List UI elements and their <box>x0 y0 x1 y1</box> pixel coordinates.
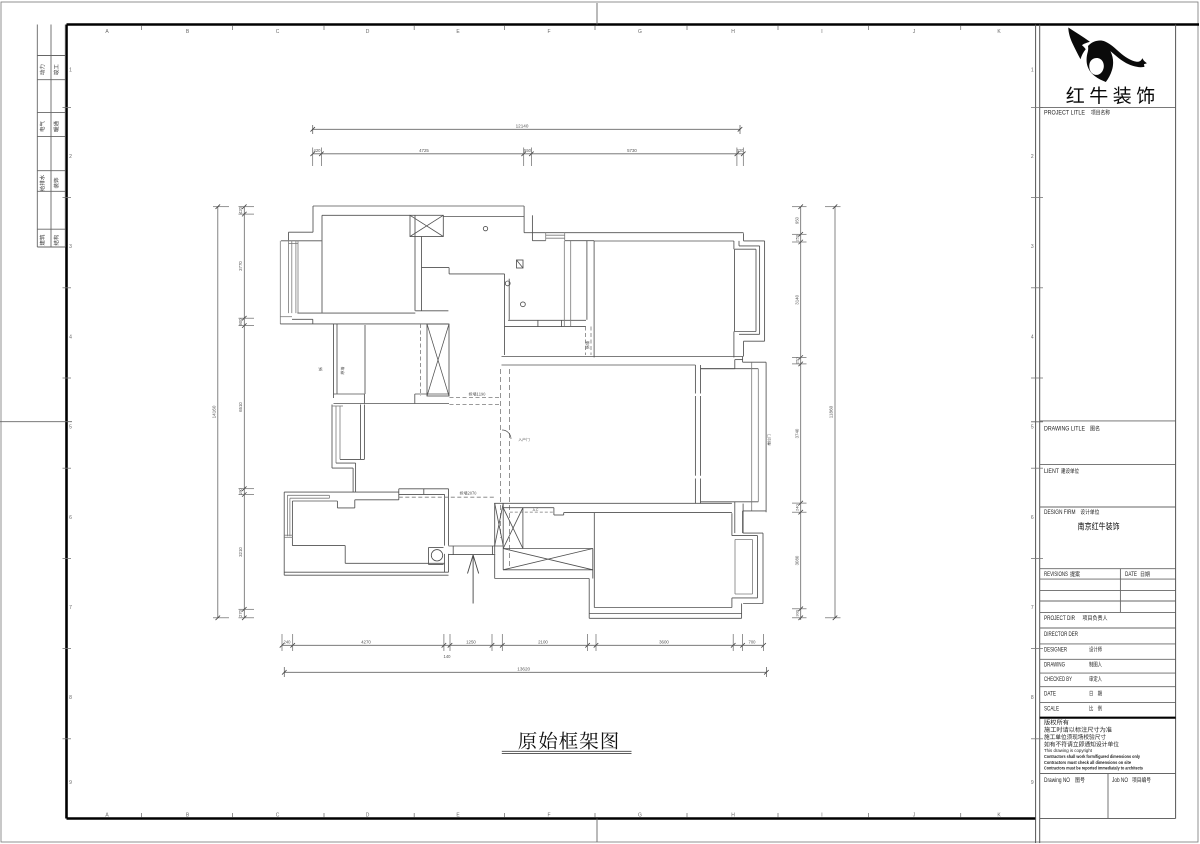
svg-text:PROJECT LITLE: PROJECT LITLE <box>1044 110 1085 117</box>
svg-text:3770: 3770 <box>238 261 243 271</box>
svg-text:I: I <box>821 29 822 35</box>
svg-text:420: 420 <box>737 148 745 153</box>
svg-text:DESIGN FIRM: DESIGN FIRM <box>1044 509 1076 516</box>
svg-text:5: 5 <box>69 425 72 431</box>
svg-text:2: 2 <box>1031 154 1034 160</box>
svg-text:190: 190 <box>238 487 243 495</box>
svg-text:8: 8 <box>1031 695 1034 701</box>
svg-text:1250: 1250 <box>466 639 476 644</box>
svg-text:240: 240 <box>284 639 292 644</box>
svg-text:Contractors must be reported i: Contractors must be reported immediataly… <box>1044 766 1143 772</box>
svg-text:13620: 13620 <box>517 667 530 672</box>
svg-text:D: D <box>366 813 370 819</box>
svg-text:3: 3 <box>69 244 72 250</box>
svg-text:DRAWING LITLE: DRAWING LITLE <box>1044 426 1085 433</box>
svg-text:G: G <box>638 813 642 819</box>
svg-text:7: 7 <box>69 605 72 611</box>
svg-text:250: 250 <box>794 234 799 241</box>
svg-text:SCALE: SCALE <box>1044 706 1059 713</box>
svg-text:300: 300 <box>794 609 799 616</box>
svg-text:D: D <box>366 29 370 35</box>
svg-text:420: 420 <box>314 148 322 153</box>
svg-text:Contractors must check all dim: Contractors must check all dimensions on… <box>1044 760 1131 766</box>
svg-text:2100: 2100 <box>538 639 548 644</box>
svg-text:PROJECT DIR: PROJECT DIR <box>1044 615 1075 622</box>
svg-text:950: 950 <box>794 216 799 224</box>
svg-text:4: 4 <box>69 334 72 340</box>
svg-text:5730: 5730 <box>627 148 637 153</box>
svg-text:3140: 3140 <box>794 294 799 304</box>
svg-text:140: 140 <box>444 654 452 659</box>
svg-text:4270: 4270 <box>361 639 371 644</box>
svg-text:C: C <box>276 813 280 819</box>
svg-text:I: I <box>821 813 822 819</box>
svg-text:8: 8 <box>69 695 72 701</box>
svg-text:F: F <box>547 29 550 35</box>
svg-text:250: 250 <box>794 357 799 364</box>
svg-text:7: 7 <box>1031 605 1034 611</box>
svg-text:550: 550 <box>524 148 532 153</box>
svg-text:3740: 3740 <box>794 428 799 438</box>
svg-text:4725: 4725 <box>419 148 429 153</box>
svg-text:6: 6 <box>1031 515 1034 521</box>
svg-text:11860: 11860 <box>829 405 834 418</box>
svg-text:3080: 3080 <box>794 555 799 565</box>
svg-text:DATE: DATE <box>1044 691 1056 698</box>
svg-text:1: 1 <box>1031 68 1034 74</box>
svg-text:5: 5 <box>1031 425 1034 431</box>
svg-text:1: 1 <box>69 68 72 74</box>
svg-text:4: 4 <box>1031 334 1034 340</box>
svg-text:6510: 6510 <box>238 402 243 412</box>
svg-text:H: H <box>731 29 735 35</box>
svg-text:Drawing NO: Drawing NO <box>1044 777 1070 784</box>
svg-text:DESIGNER: DESIGNER <box>1044 647 1067 654</box>
svg-text:REVISIONS: REVISIONS <box>1044 571 1068 578</box>
svg-text:F: F <box>547 813 550 819</box>
svg-text:E: E <box>456 29 460 35</box>
svg-text:DATE: DATE <box>1125 571 1137 578</box>
svg-text:H: H <box>731 813 735 819</box>
svg-text:C: C <box>276 29 280 35</box>
svg-text:14160: 14160 <box>212 405 217 418</box>
svg-text:700: 700 <box>749 639 757 644</box>
svg-text:900: 900 <box>238 318 243 326</box>
svg-text:A.C: A.C <box>533 508 539 512</box>
svg-text:Contractors shall work form/fi: Contractors shall work form/figured dime… <box>1044 754 1140 760</box>
svg-text:LIENT: LIENT <box>1044 468 1059 475</box>
svg-text:9: 9 <box>69 780 72 786</box>
svg-text:9: 9 <box>1031 780 1034 786</box>
svg-text:K: K <box>997 29 1001 35</box>
svg-text:12140: 12140 <box>516 124 529 129</box>
svg-text:B: B <box>186 29 190 35</box>
svg-text:CHECKED BY: CHECKED BY <box>1044 676 1073 683</box>
svg-text:3600: 3600 <box>659 639 669 644</box>
svg-text:J: J <box>913 29 916 35</box>
svg-text:Job NO: Job NO <box>1112 777 1128 784</box>
svg-text:6: 6 <box>69 515 72 521</box>
svg-text:DIRECTOR DER: DIRECTOR DER <box>1044 631 1078 638</box>
svg-text:DRAWING: DRAWING <box>1044 662 1065 669</box>
svg-text:420: 420 <box>238 206 243 214</box>
svg-text:3210: 3210 <box>238 547 243 557</box>
svg-text:A: A <box>105 29 109 35</box>
svg-text:This drawing is copyright: This drawing is copyright <box>1044 748 1093 754</box>
svg-text:G: G <box>638 29 642 35</box>
svg-text:240: 240 <box>794 503 799 510</box>
svg-text:2: 2 <box>69 154 72 160</box>
svg-text:270: 270 <box>238 609 243 617</box>
svg-text:3: 3 <box>1031 244 1034 250</box>
